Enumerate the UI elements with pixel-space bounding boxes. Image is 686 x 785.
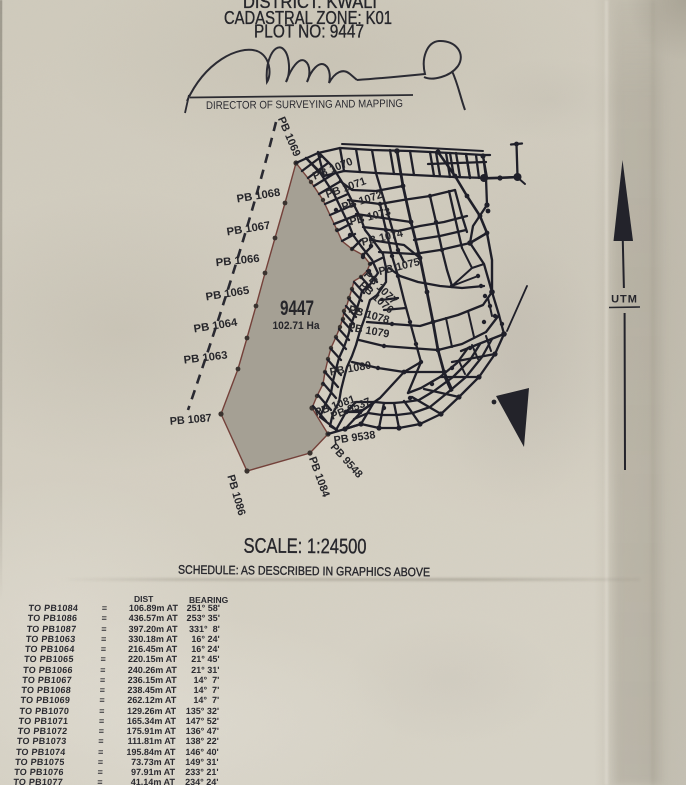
svg-text:PLOT NO: 9447: PLOT NO: 9447 xyxy=(254,22,364,42)
svg-text:9447: 9447 xyxy=(280,297,314,320)
svg-text:UTM: UTM xyxy=(611,294,638,306)
svg-text:102.71 Ha: 102.71 Ha xyxy=(273,320,321,332)
svg-text:DIRECTOR OF SURVEYING AND MAPP: DIRECTOR OF SURVEYING AND MAPPING xyxy=(206,98,403,112)
svg-text:SCALE: 1:24500: SCALE: 1:24500 xyxy=(243,535,366,559)
svg-text:SCHEDULE: AS DESCRIBED IN GRAP: SCHEDULE: AS DESCRIBED IN GRAPHICS ABOVE xyxy=(178,563,430,580)
